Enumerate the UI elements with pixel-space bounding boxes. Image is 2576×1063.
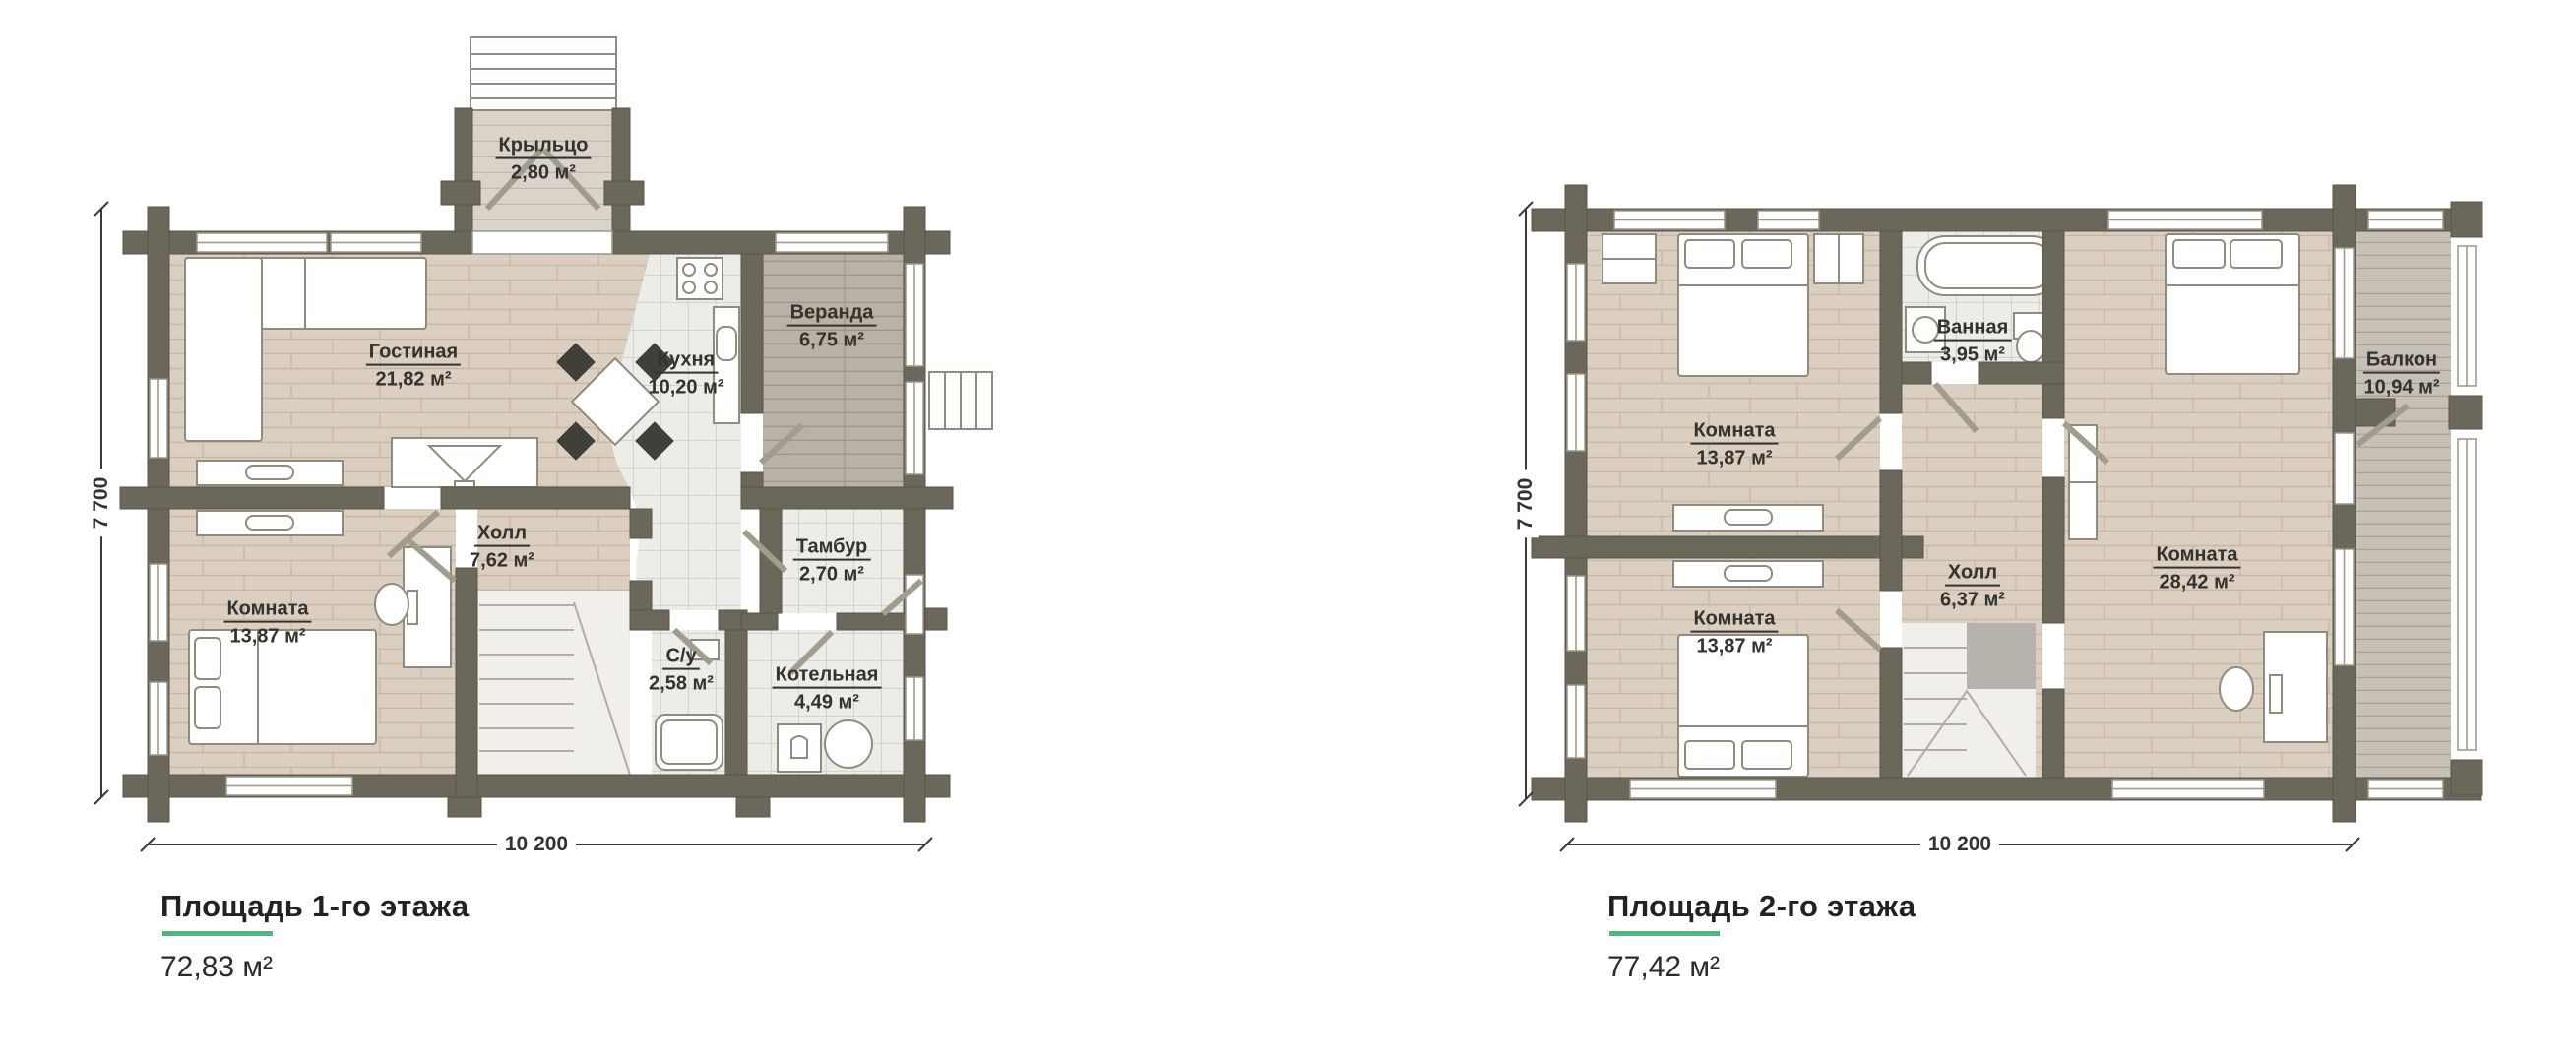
room-area: 21,82 м² [366, 369, 461, 391]
room-label-komnata-2a: Комната 13,87 м² [1690, 420, 1778, 470]
room-label-kotelnaya: Котельная 4,49 м² [773, 664, 882, 715]
room-name: Кухня [655, 349, 718, 374]
room-area: 13,87 м² [1690, 636, 1778, 657]
floorplans-canvas: Крыльцо 2,80 м² Гостиная 21,82 м² Кухня … [0, 0, 2576, 1063]
room-area: 10,20 м² [648, 377, 723, 399]
room-name: Тамбур [793, 536, 871, 561]
floor1-dim-height: 7 700 [89, 469, 114, 537]
room-label-holl-2: Холл 6,37 м² [1940, 562, 2005, 612]
room-area: 7,62 м² [470, 550, 534, 572]
room-label-holl-1: Холл 7,62 м² [470, 523, 534, 573]
room-area: 6,75 м² [787, 330, 877, 351]
room-area: 10,94 м² [2363, 377, 2440, 399]
room-label-gostinaya: Гостиная 21,82 м² [366, 342, 461, 392]
room-name: Ванная [1934, 317, 2012, 342]
room-name: Крыльцо [495, 135, 591, 159]
floor1-title-underline [162, 931, 273, 936]
floor2-title-underline [1609, 931, 1720, 936]
room-label-komnata-2c: Комната 28,42 м² [2153, 544, 2240, 594]
floor1-area-value: 72,83 м² [160, 951, 273, 984]
room-name: Балкон [2363, 349, 2440, 374]
room-label-komnata-1: Комната 13,87 м² [223, 598, 311, 649]
floor2-title: Площадь 2-го этажа [1607, 889, 1916, 924]
floor2-area-value: 77,42 м² [1607, 951, 1720, 984]
floor1-dim-width: 10 200 [497, 832, 576, 857]
floor2-dim-height: 7 700 [1513, 470, 1539, 538]
room-name: Комната [223, 598, 311, 623]
room-area: 13,87 м² [223, 626, 311, 648]
room-label-tambur: Тамбур 2,70 м² [793, 536, 871, 587]
room-area: 3,95 м² [1934, 344, 2012, 366]
room-area: 28,42 м² [2153, 572, 2240, 594]
room-name: Холл [474, 523, 530, 547]
room-area: 13,87 м² [1690, 448, 1778, 469]
room-area: 6,37 м² [1940, 590, 2005, 611]
room-name: Холл [1945, 562, 2000, 587]
room-name: Веранда [787, 302, 877, 327]
room-area: 2,58 м² [649, 673, 714, 695]
room-area: 4,49 м² [773, 692, 882, 714]
room-name: Гостиная [366, 342, 461, 366]
room-name: Комната [1690, 608, 1778, 633]
floor1-title: Площадь 1-го этажа [160, 889, 469, 924]
room-label-kryltso: Крыльцо 2,80 м² [495, 135, 591, 185]
room-label-vannaya: Ванная 3,95 м² [1934, 317, 2012, 367]
room-label-komnata-2b: Комната 13,87 м² [1690, 608, 1778, 658]
room-label-balkon: Балкон 10,94 м² [2363, 349, 2440, 400]
room-area: 2,80 м² [495, 162, 591, 184]
floor2-plan [1519, 185, 2482, 851]
room-area: 2,70 м² [793, 564, 871, 586]
room-name: Комната [2153, 544, 2240, 569]
room-name: С/у [662, 646, 699, 670]
room-label-su: С/у 2,58 м² [649, 646, 714, 696]
room-label-kuhnya: Кухня 10,20 м² [648, 349, 723, 400]
room-name: Котельная [773, 664, 882, 689]
room-label-veranda: Веранда 6,75 м² [787, 302, 877, 352]
room-name: Комната [1690, 420, 1778, 445]
floor2-dim-width: 10 200 [1920, 832, 1999, 857]
